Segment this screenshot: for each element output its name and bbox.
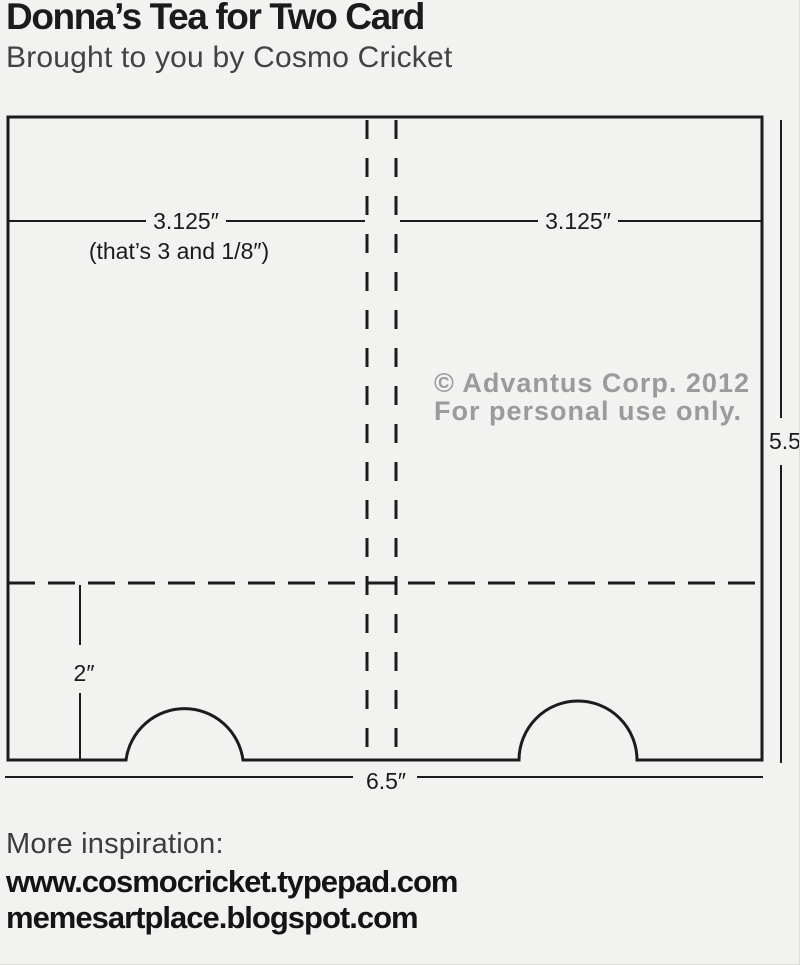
cosmocricket-url: www.cosmocricket.typepad.com [6,864,786,900]
footer: More inspiration: www.cosmocricket.typep… [6,828,786,936]
dim-label-height: 5.5″ [769,428,800,454]
memesartplace-url: memesartplace.blogspot.com [6,900,786,936]
template-page: Donna’s Tea for Two Card Brought to you … [0,0,800,965]
dim-label-total-width: 6.5″ [366,768,406,794]
dim-label-right-width: 3.125″ [545,208,611,234]
dim-label-flap: 2″ [74,660,95,686]
card-template-diagram: 3.125″ (that’s 3 and 1/8″) 3.125″ 5.5″ 2… [0,100,800,820]
card-outline [8,117,762,760]
page-subtitle: Brought to you by Cosmo Cricket [6,41,452,75]
page-title: Donna’s Tea for Two Card [6,0,424,38]
more-inspiration-label: More inspiration: [6,828,786,861]
dim-label-left-note: (that’s 3 and 1/8″) [89,238,269,264]
copyright-line1: © Advantus Corp. 2012 [434,368,750,398]
copyright-line2: For personal use only. [434,396,742,426]
dim-label-left-width: 3.125″ [153,208,219,234]
